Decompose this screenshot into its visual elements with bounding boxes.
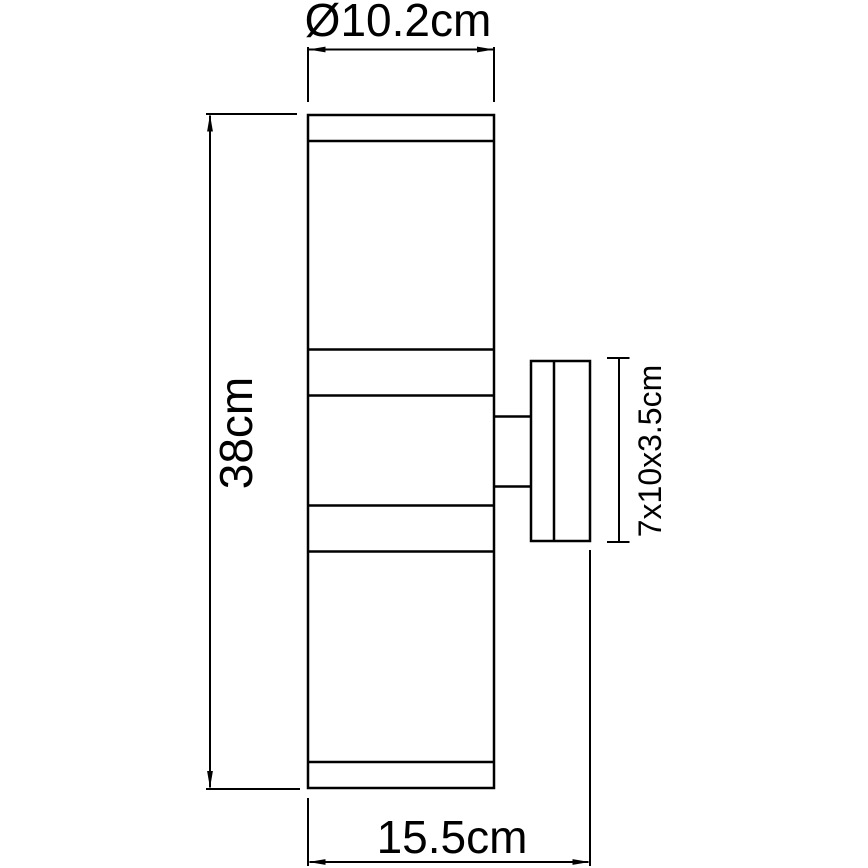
svg-text:Ø10.2cm: Ø10.2cm — [305, 0, 492, 46]
svg-text:15.5cm: 15.5cm — [377, 811, 528, 863]
svg-text:38cm: 38cm — [210, 377, 262, 489]
svg-text:7x10x3.5cm: 7x10x3.5cm — [632, 365, 668, 538]
